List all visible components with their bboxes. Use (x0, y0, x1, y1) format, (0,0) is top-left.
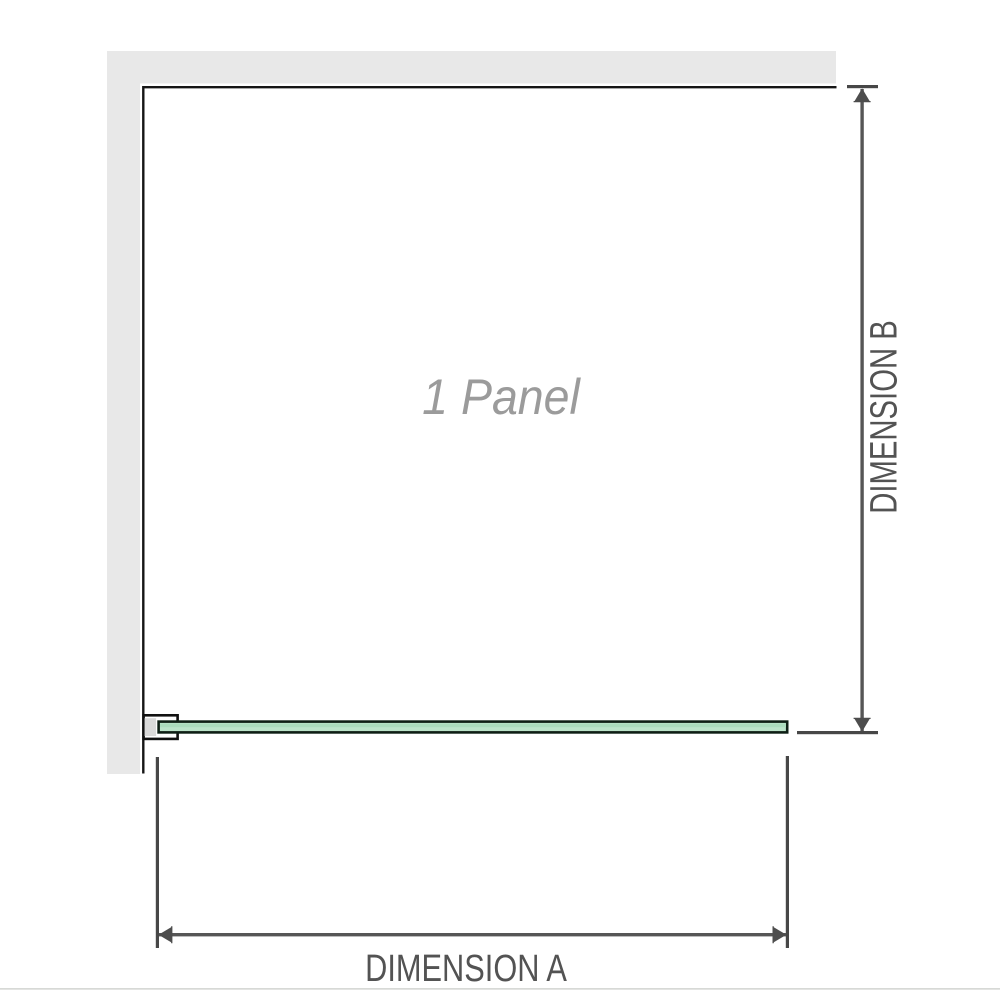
svg-text:1 Panel: 1 Panel (422, 369, 581, 425)
svg-text:DIMENSION B: DIMENSION B (863, 320, 906, 513)
svg-text:DIMENSION A: DIMENSION A (365, 948, 567, 990)
